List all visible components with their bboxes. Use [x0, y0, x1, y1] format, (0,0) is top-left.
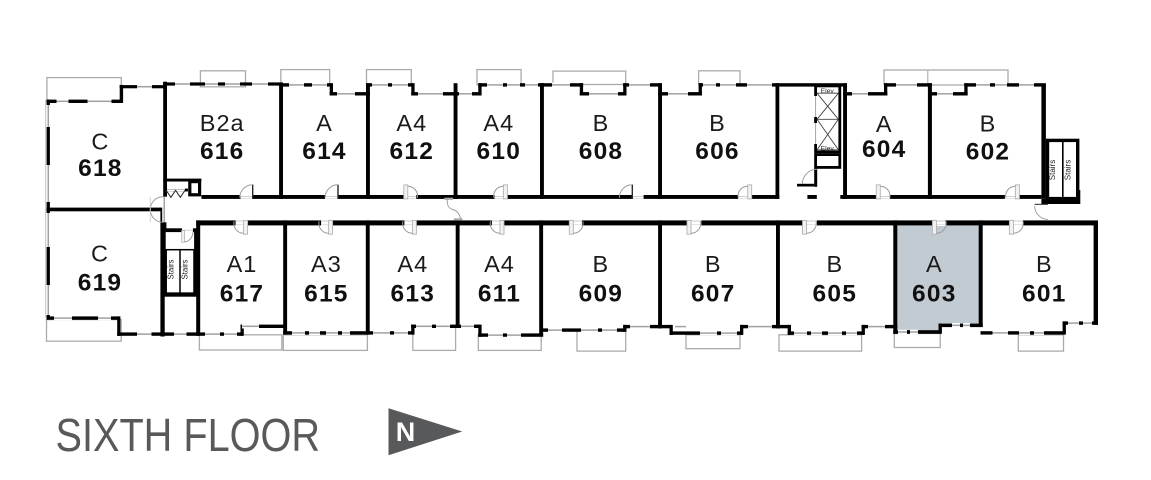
svg-text:A1: A1: [227, 251, 258, 277]
svg-text:B: B: [709, 110, 726, 136]
svg-text:Stairs: Stairs: [1048, 160, 1057, 180]
svg-text:607: 607: [691, 281, 735, 308]
svg-text:SIXTH FLOOR: SIXTH FLOOR: [56, 409, 321, 461]
svg-text:B: B: [705, 251, 722, 277]
svg-text:Elev.: Elev.: [821, 146, 836, 153]
svg-text:C: C: [91, 240, 109, 266]
svg-text:611: 611: [478, 281, 521, 308]
svg-text:Elev.: Elev.: [821, 88, 836, 95]
svg-text:616: 616: [200, 138, 244, 165]
svg-text:Stairs: Stairs: [1064, 160, 1073, 180]
svg-text:612: 612: [390, 138, 434, 165]
svg-text:602: 602: [966, 139, 1010, 166]
svg-text:A4: A4: [483, 110, 514, 136]
svg-text:606: 606: [695, 138, 739, 165]
svg-text:B: B: [980, 111, 997, 137]
svg-text:A: A: [926, 251, 943, 277]
svg-text:Stairs: Stairs: [166, 259, 175, 279]
svg-text:603: 603: [912, 281, 956, 308]
svg-text:618: 618: [78, 155, 122, 182]
svg-text:601: 601: [1022, 281, 1066, 308]
svg-text:B: B: [593, 251, 610, 277]
svg-text:B: B: [593, 110, 610, 136]
svg-text:A4: A4: [397, 251, 428, 277]
svg-text:609: 609: [579, 281, 623, 308]
svg-text:619: 619: [78, 270, 122, 297]
svg-text:613: 613: [391, 281, 435, 308]
svg-text:617: 617: [220, 281, 264, 308]
svg-text:A3: A3: [311, 251, 342, 277]
svg-text:C: C: [91, 128, 109, 154]
svg-text:604: 604: [862, 136, 906, 163]
svg-text:B: B: [1036, 251, 1053, 277]
svg-text:608: 608: [579, 138, 623, 165]
svg-text:N: N: [396, 417, 416, 447]
svg-text:610: 610: [477, 138, 521, 165]
svg-text:605: 605: [813, 281, 857, 308]
svg-text:A: A: [876, 111, 893, 137]
svg-text:615: 615: [304, 281, 348, 308]
svg-text:B: B: [826, 251, 843, 277]
svg-text:A: A: [316, 110, 333, 136]
svg-text:Stairs: Stairs: [180, 259, 189, 279]
svg-text:A4: A4: [484, 251, 515, 277]
svg-text:614: 614: [302, 138, 346, 165]
svg-text:B2a: B2a: [200, 110, 245, 136]
svg-text:A4: A4: [396, 110, 427, 136]
